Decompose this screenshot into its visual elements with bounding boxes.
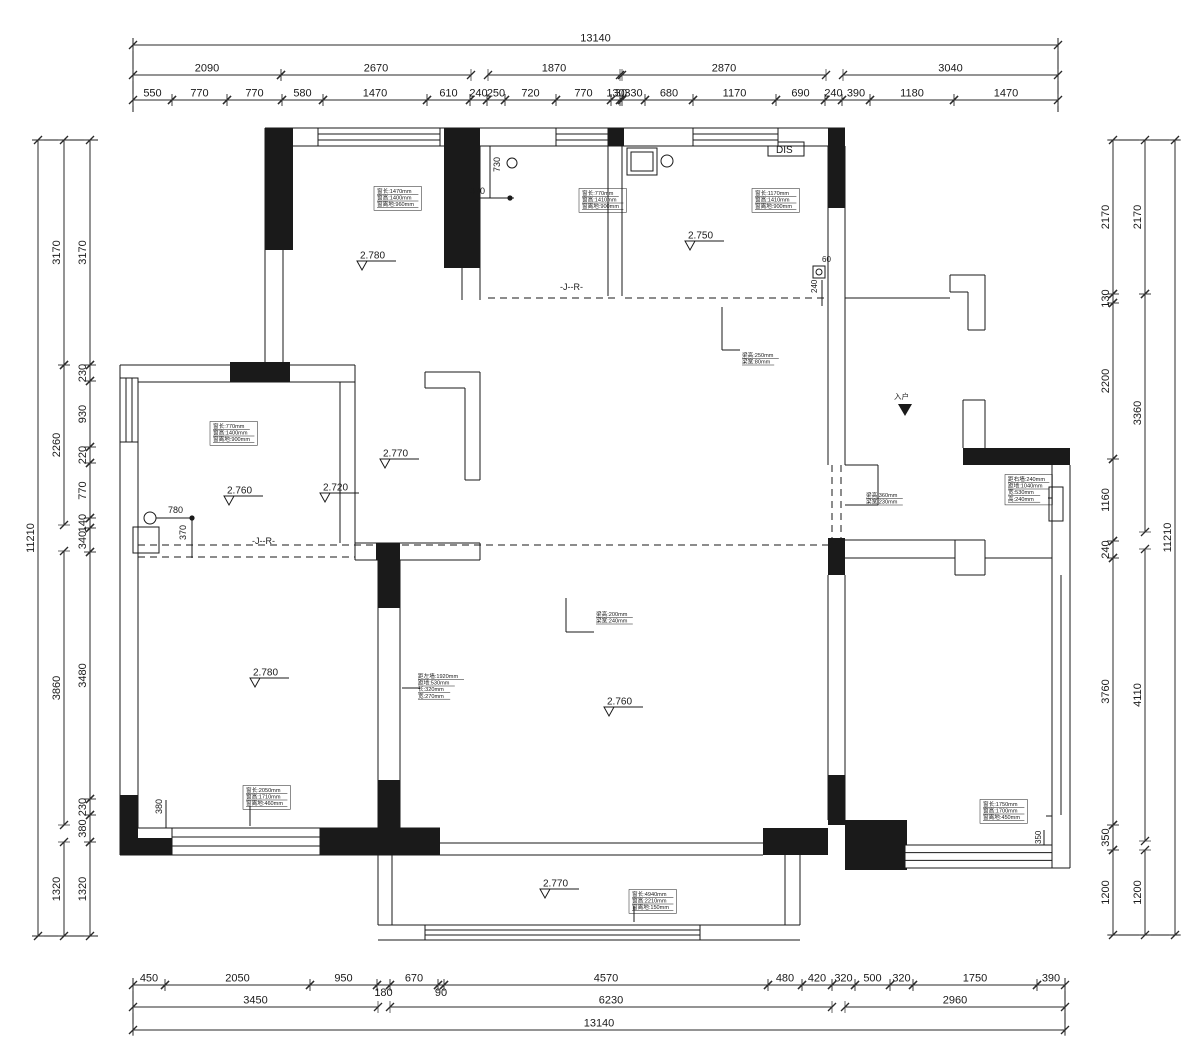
dim-label: 720	[521, 88, 539, 100]
small-label: 380	[154, 799, 164, 814]
wall-solid	[845, 820, 907, 870]
note-line: 窗长:1470mm	[377, 187, 412, 195]
dim-label: 390	[847, 88, 865, 100]
elevation-value: 2.780	[253, 668, 278, 679]
note-line: 距地:530mm	[418, 679, 450, 687]
wall-solid	[378, 560, 400, 608]
dim-label: 250	[487, 88, 505, 100]
wall-solid	[376, 543, 400, 560]
dim-label: 2050	[225, 973, 249, 985]
dim-label: 240	[824, 88, 842, 100]
dim-label: 670	[405, 973, 423, 985]
wall-solid	[378, 780, 400, 828]
small-label: 240	[810, 279, 819, 293]
dim-label: 2170	[1100, 205, 1112, 229]
note-line: 窗离地:900mm	[213, 435, 250, 443]
dim-label: 3480	[77, 663, 89, 687]
dim-label: 220	[77, 446, 89, 464]
wall-solid	[828, 775, 845, 825]
elevation-triangle-icon	[685, 241, 695, 250]
dim-label: 690	[791, 88, 809, 100]
note-line: 高:240mm	[1008, 495, 1034, 503]
dim-label: 3450	[243, 995, 267, 1007]
dim-label: 3760	[1100, 679, 1112, 703]
dim-label: 450	[140, 973, 158, 985]
dim-label: 320	[834, 973, 852, 985]
note-line: 窗高:1400mm	[377, 194, 412, 202]
entry-marker: 入户	[894, 391, 912, 416]
entry-label: 入户	[894, 391, 909, 401]
fixture-circle	[144, 512, 156, 524]
window	[425, 925, 700, 940]
dim-label: 3860	[51, 676, 63, 700]
note-line: 窗离地:150mm	[632, 903, 669, 911]
dim-label: 930	[77, 405, 89, 423]
dim-label: 770	[77, 481, 89, 499]
dim-label: 230	[77, 798, 89, 816]
floor-plan: 1314020902670187028703040550770770580147…	[0, 0, 1200, 1059]
note-line: 距地:1040mm	[1008, 482, 1043, 490]
note-line: 梁高:250mm	[742, 351, 774, 359]
window	[172, 828, 320, 855]
small-label: 350	[1034, 830, 1043, 844]
dim-label: 1470	[994, 88, 1018, 100]
fixture-outline	[133, 527, 159, 553]
dim-label: 2090	[195, 63, 219, 75]
window	[120, 378, 138, 442]
dim-label: 4570	[594, 973, 618, 985]
note-line: 梁宽:230mm	[866, 498, 898, 506]
elevation-markers: 2.7802.7502.7702.7602.7202.7802.7602.770	[224, 231, 724, 899]
wall-solid	[265, 128, 293, 250]
dim-label: 500	[863, 973, 881, 985]
dim-label: 140	[77, 514, 89, 532]
fixture-circle	[661, 155, 673, 167]
fixture-outline	[631, 152, 653, 171]
elevation-value: 2.780	[360, 251, 385, 262]
dim-label: 480	[776, 973, 794, 985]
wall-solid	[828, 538, 845, 575]
elevation-triangle-icon	[380, 459, 390, 468]
elevation-value: 2.770	[543, 879, 568, 890]
note-line: 窗高:1710mm	[246, 793, 281, 801]
note-line: 窗长:770mm	[582, 189, 614, 197]
note-line: 长:320mm	[418, 685, 444, 693]
dim-label: 3170	[51, 240, 63, 264]
fixture-outline	[813, 266, 825, 278]
elevation-triangle-icon	[250, 678, 260, 687]
small-label: -J--R-	[560, 282, 583, 292]
dim-label: 2170	[1132, 205, 1144, 229]
note-line: 窗高:1400mm	[213, 429, 248, 437]
note-line: 窗高:2210mm	[632, 897, 667, 905]
dim-label: 13140	[580, 33, 611, 45]
dim-label: 1180	[900, 88, 924, 100]
walls	[32, 38, 1180, 1035]
leader-dot	[507, 195, 512, 200]
elevation-value: 2.750	[688, 231, 713, 242]
note-line: 窗长:1750mm	[983, 800, 1018, 808]
elevation-value: 2.720	[323, 483, 348, 494]
dim-label: 2260	[51, 433, 63, 457]
floor-plan-svg: 1314020902670187028703040550770770580147…	[0, 0, 1200, 1059]
dim-label: 320	[892, 973, 910, 985]
elevation-value: 2.760	[607, 697, 632, 708]
dim-label: 230	[77, 364, 89, 382]
small-label: -J--R-	[252, 536, 275, 546]
note-line: 梁宽:80mm	[742, 358, 771, 366]
note-line: 窗长:770mm	[213, 422, 245, 430]
small-label: 730	[492, 157, 502, 172]
note-line: 窗高:1410mm	[755, 196, 790, 204]
dim-label: 550	[143, 88, 161, 100]
small-label: 370	[470, 186, 485, 196]
elevation-triangle-icon	[357, 261, 367, 270]
dim-label: 1320	[51, 877, 63, 901]
note-line: 窗长:4940mm	[632, 890, 667, 898]
dim-label: 350	[1100, 828, 1112, 846]
note-line: 窗离地:900mm	[755, 202, 792, 210]
leader-dot	[189, 515, 194, 520]
note-line: 窗长:1170mm	[755, 189, 789, 197]
note-line: 距左墙:1920mm	[418, 672, 458, 680]
dim-label: 13140	[584, 1018, 615, 1030]
wall-solid	[763, 828, 828, 855]
note-line: 窗高:1700mm	[983, 807, 1018, 815]
wall-solid	[320, 828, 440, 855]
annotations: 窗长:1470mm窗高:1400mm窗离地:960mm窗长:770mm窗高:14…	[210, 187, 1052, 914]
fixture-outline	[1049, 487, 1063, 521]
note-line: 距右墙:240mm	[1008, 475, 1045, 483]
elevation-value: 2.760	[227, 486, 252, 497]
fixture-circle	[816, 269, 822, 275]
dim-label: 1750	[963, 973, 987, 985]
windows	[120, 128, 1052, 940]
wall-solid	[963, 448, 1070, 465]
window	[905, 845, 1052, 868]
elevation-triangle-icon	[540, 889, 550, 898]
wall-solid	[120, 838, 175, 855]
small-label: 60	[822, 255, 831, 264]
dim-label: 11210	[1162, 523, 1174, 553]
wall-solid	[230, 362, 290, 382]
dim-label: 770	[245, 88, 263, 100]
note-line: 窗离地:960mm	[377, 200, 414, 208]
dim-label: 770	[574, 88, 592, 100]
note-line: 窗离地:450mm	[983, 813, 1020, 821]
dim-label: 580	[293, 88, 311, 100]
dim-label: 420	[808, 973, 826, 985]
small-label: DIS	[776, 145, 793, 156]
small-label: 370	[178, 525, 188, 540]
dimensions: 1314020902670187028703040550770770580147…	[25, 33, 1181, 1037]
dim-label: 2870	[712, 63, 736, 75]
note-line: 窗离地:460mm	[246, 799, 283, 807]
note-line: 宽:530mm	[1008, 488, 1034, 496]
dim-label: 680	[660, 88, 678, 100]
note-line: 宽:270mm	[418, 692, 444, 700]
dim-label: 1870	[542, 63, 566, 75]
dim-label: 3170	[77, 240, 89, 264]
dim-label: 3360	[1132, 401, 1144, 425]
small-label: 780	[168, 505, 183, 515]
dim-label: 6230	[599, 995, 623, 1007]
elevation-triangle-icon	[320, 493, 330, 502]
elevation-value: 2.770	[383, 449, 408, 460]
dim-label: 1170	[723, 88, 747, 100]
dim-label: 330	[624, 88, 642, 100]
dim-label: 11210	[25, 523, 37, 553]
note-line: 窗长:2050mm	[246, 786, 281, 794]
dim-label: 3040	[938, 63, 962, 75]
entry-arrow-icon	[898, 404, 912, 416]
elevation-triangle-icon	[224, 496, 234, 505]
dim-label: 4110	[1132, 683, 1144, 707]
dim-label: 2960	[943, 995, 967, 1007]
dim-label: 2200	[1100, 369, 1112, 393]
fixture-circle	[507, 158, 517, 168]
dim-label: 240	[469, 88, 487, 100]
wall-solid	[444, 128, 480, 268]
note-line: 梁高:200mm	[596, 610, 628, 618]
dim-label: 1320	[77, 877, 89, 901]
dim-label: 610	[439, 88, 457, 100]
dim-label: 770	[190, 88, 208, 100]
dim-label: 340	[77, 531, 89, 549]
dim-label: 1200	[1132, 880, 1144, 904]
window	[556, 128, 608, 146]
dim-label: 2670	[364, 63, 388, 75]
note-line: 窗高:1410mm	[582, 196, 617, 204]
wall-solid	[828, 128, 845, 208]
note-line: 梁高:360mm	[866, 491, 898, 499]
dim-label: 1470	[363, 88, 387, 100]
dim-label: 1200	[1100, 880, 1112, 904]
dim-label: 1160	[1100, 488, 1112, 512]
dim-label: 380	[77, 819, 89, 837]
note-line: 梁宽:240mm	[596, 617, 628, 625]
elevation-triangle-icon	[604, 707, 614, 716]
dim-label: 390	[1042, 973, 1060, 985]
note-line: 窗离地:900mm	[582, 202, 619, 210]
dim-label: 240	[1100, 540, 1112, 558]
dim-label: 950	[334, 973, 352, 985]
window	[318, 128, 440, 146]
window	[693, 128, 778, 146]
